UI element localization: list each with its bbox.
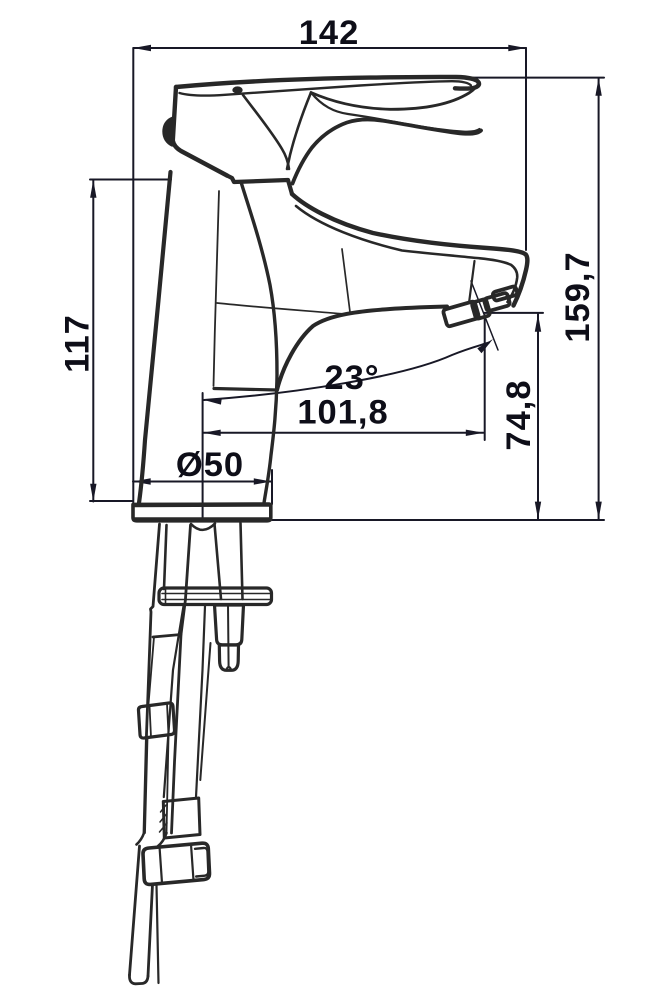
svg-text:142: 142 — [299, 14, 360, 52]
svg-text:159,7: 159,7 — [559, 251, 597, 342]
svg-text:23°: 23° — [324, 359, 379, 397]
svg-text:Ø50: Ø50 — [176, 446, 244, 484]
svg-text:117: 117 — [59, 314, 97, 373]
svg-text:74,8: 74,8 — [500, 379, 538, 450]
svg-text:101,8: 101,8 — [297, 394, 388, 432]
